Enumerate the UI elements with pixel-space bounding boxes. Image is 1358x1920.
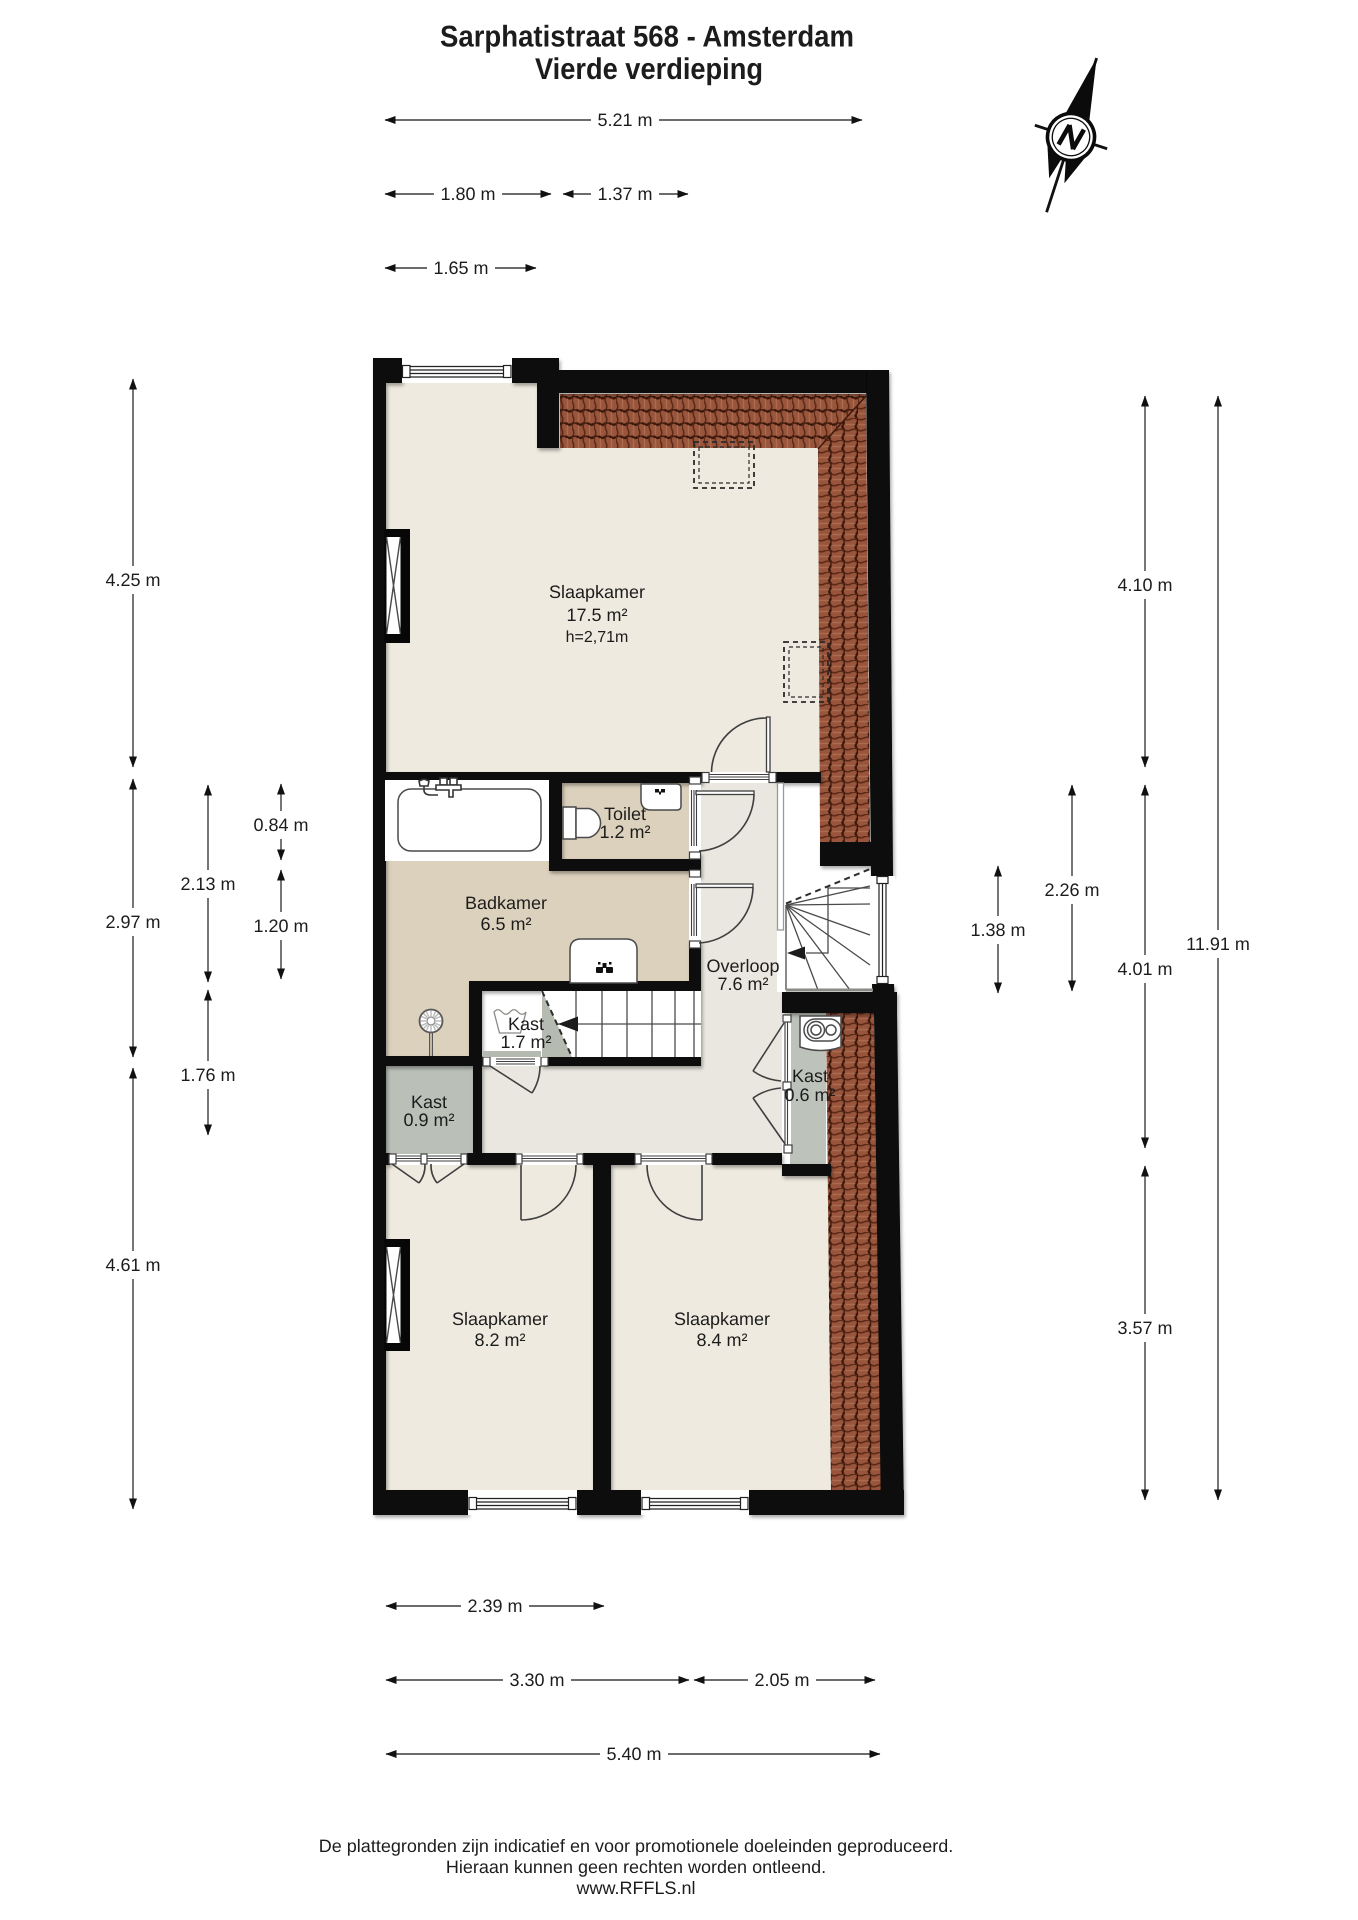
svg-text:1.37 m: 1.37 m [597, 184, 652, 204]
svg-text:8.4 m²: 8.4 m² [696, 1330, 747, 1350]
svg-text:1.2 m²: 1.2 m² [599, 822, 650, 842]
svg-text:6.5 m²: 6.5 m² [480, 914, 531, 934]
svg-text:Sarphatistraat 568 - Amsterdam: Sarphatistraat 568 - Amsterdam [440, 21, 854, 54]
svg-text:2.26 m: 2.26 m [1044, 880, 1099, 900]
svg-text:2.39 m: 2.39 m [467, 1596, 522, 1616]
svg-text:Slaapkamer: Slaapkamer [674, 1309, 770, 1329]
svg-text:Kast: Kast [411, 1092, 447, 1112]
svg-text:8.2 m²: 8.2 m² [474, 1330, 525, 1350]
svg-text:2.13 m: 2.13 m [180, 874, 235, 894]
svg-text:1.65 m: 1.65 m [433, 258, 488, 278]
svg-text:Overloop: Overloop [706, 956, 779, 976]
svg-text:0.6 m²: 0.6 m² [784, 1085, 835, 1105]
svg-text:Kast: Kast [792, 1066, 828, 1086]
svg-text:Slaapkamer: Slaapkamer [549, 582, 645, 602]
svg-text:Toilet: Toilet [604, 804, 646, 824]
svg-text:7.6 m²: 7.6 m² [717, 974, 768, 994]
svg-text:h=2,71m: h=2,71m [566, 629, 629, 646]
svg-text:Vierde verdieping: Vierde verdieping [535, 53, 763, 86]
svg-text:5.21 m: 5.21 m [597, 110, 652, 130]
svg-text:4.61 m: 4.61 m [105, 1255, 160, 1275]
svg-text:Kast: Kast [508, 1014, 544, 1034]
svg-text:0.84 m: 0.84 m [253, 815, 308, 835]
svg-text:11.91 m: 11.91 m [1186, 934, 1250, 954]
svg-text:De plattegronden zijn indicati: De plattegronden zijn indicatief en voor… [319, 1836, 953, 1856]
svg-text:www.RFFLS.nl: www.RFFLS.nl [575, 1878, 695, 1898]
svg-text:3.30 m: 3.30 m [509, 1670, 564, 1690]
svg-text:5.40 m: 5.40 m [606, 1744, 661, 1764]
svg-text:2.97 m: 2.97 m [105, 912, 160, 932]
svg-text:1.76 m: 1.76 m [180, 1065, 235, 1085]
svg-text:4.01 m: 4.01 m [1117, 959, 1172, 979]
svg-text:Slaapkamer: Slaapkamer [452, 1309, 548, 1329]
svg-text:Hieraan kunnen geen rechten wo: Hieraan kunnen geen rechten worden ontle… [446, 1857, 826, 1877]
svg-text:1.38 m: 1.38 m [970, 920, 1025, 940]
svg-text:3.57 m: 3.57 m [1117, 1318, 1172, 1338]
svg-text:1.20 m: 1.20 m [253, 916, 308, 936]
svg-text:1.80 m: 1.80 m [440, 184, 495, 204]
svg-text:17.5 m²: 17.5 m² [566, 605, 627, 625]
svg-text:1.7 m²: 1.7 m² [500, 1032, 551, 1052]
svg-text:0.9 m²: 0.9 m² [403, 1110, 454, 1130]
svg-text:4.25 m: 4.25 m [105, 570, 160, 590]
svg-text:4.10 m: 4.10 m [1117, 575, 1172, 595]
svg-text:Badkamer: Badkamer [465, 893, 547, 913]
svg-text:2.05 m: 2.05 m [754, 1670, 809, 1690]
